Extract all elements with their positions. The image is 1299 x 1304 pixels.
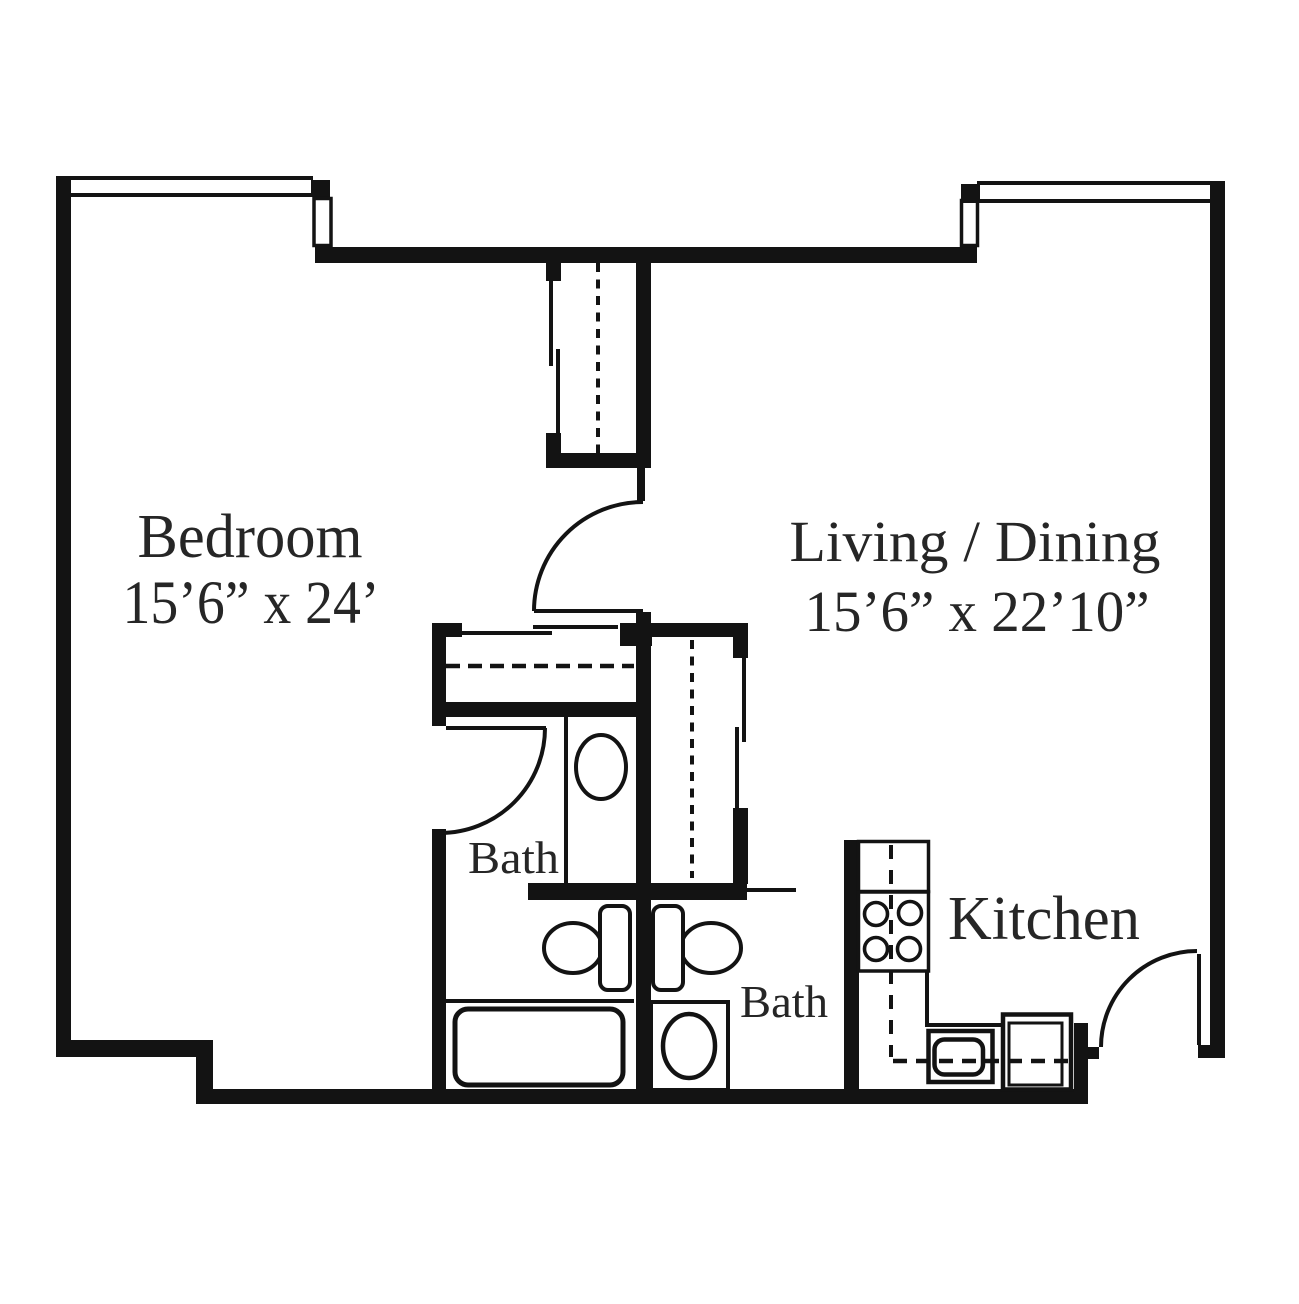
svg-text:Bedroom: Bedroom [138, 503, 363, 571]
svg-text:Bath: Bath [740, 976, 828, 1027]
svg-text:15’6” x 22’10”: 15’6” x 22’10” [805, 579, 1150, 644]
svg-text:Living / Dining: Living / Dining [790, 509, 1161, 574]
svg-text:Kitchen: Kitchen [948, 885, 1140, 953]
svg-text:Bath: Bath [468, 832, 559, 883]
svg-text:15’6” x 24’: 15’6” x 24’ [123, 570, 380, 637]
